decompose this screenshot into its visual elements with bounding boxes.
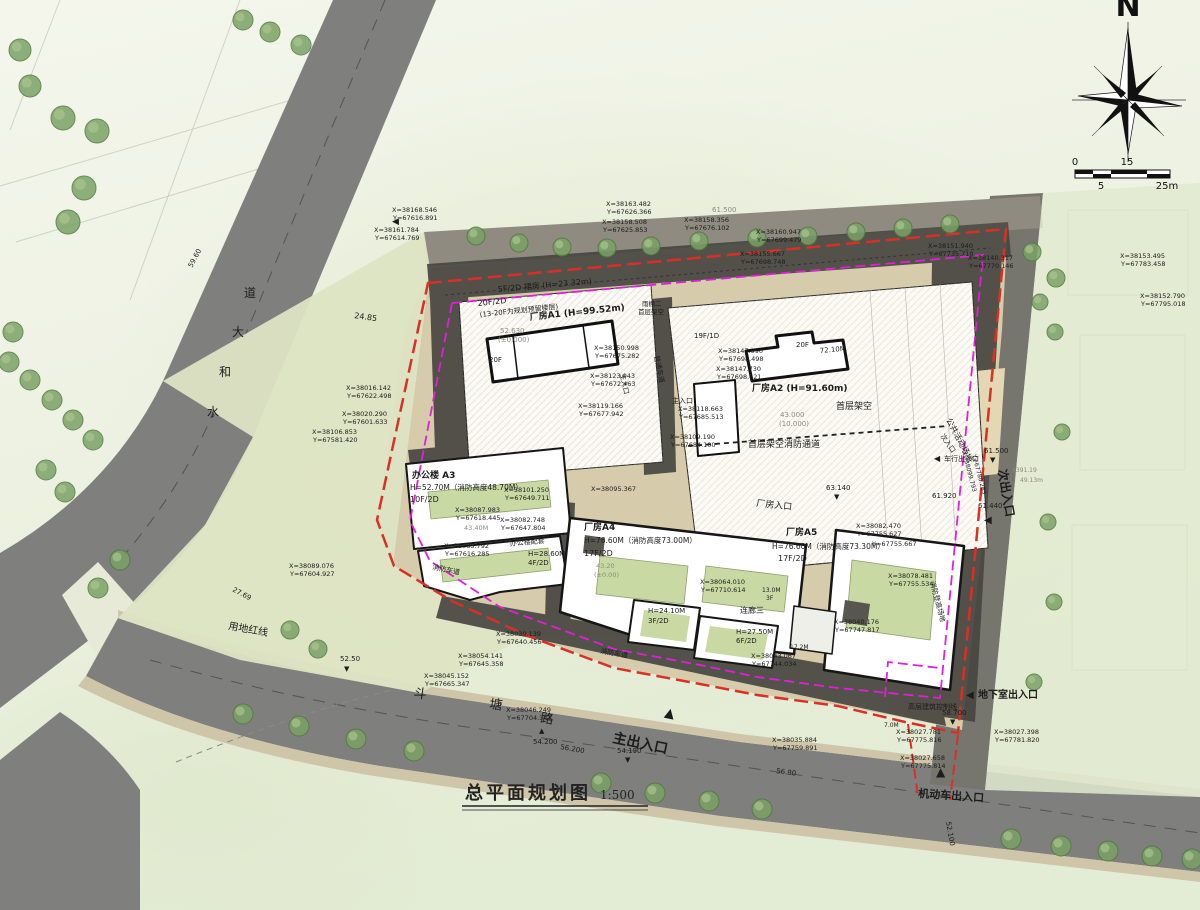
map-label: 3F/2D (648, 617, 669, 625)
map-label: Y=67698.748 (740, 258, 786, 266)
tree-highlight (1145, 849, 1154, 858)
map-label: Y=67614.769 (374, 234, 420, 242)
map-label: ◀ (392, 217, 399, 227)
map-label: (±0.000) (498, 336, 530, 344)
map-label: 61.500 (712, 206, 737, 214)
map-label: 52.630 (500, 327, 525, 335)
map-label: X=38153.495 (1120, 252, 1165, 260)
tree-highlight (943, 217, 951, 225)
map-label: H=27.50M (736, 628, 773, 636)
map-label: 10F/2D (410, 495, 439, 504)
tree-highlight (896, 221, 904, 229)
map-label: Y=67755.627 (856, 530, 902, 538)
map-label: Y=67626.366 (606, 208, 652, 216)
map-label: 19F/1D (694, 332, 719, 340)
map-label: X=38109.190 (670, 433, 715, 441)
map-label: X=38027.658 (900, 754, 945, 762)
map-label: ▼ (950, 718, 956, 726)
map-label: 63.140 (826, 484, 851, 492)
tree-highlight (59, 213, 70, 224)
map-label: ▼ (625, 756, 631, 764)
map-label: ▼ (344, 665, 350, 673)
map-label: 61.920 (932, 492, 957, 500)
basement-entrance-label: 地下室出入口 (978, 688, 1038, 701)
map-label: (±0.00) (594, 571, 619, 579)
map-label: 54.190 (617, 747, 642, 755)
map-label: 主入口 (672, 396, 693, 405)
map-label: Y=67677.942 (578, 410, 624, 418)
tree-highlight (1004, 832, 1013, 841)
tree-highlight (469, 229, 477, 237)
map-label: X=38155.667 (740, 250, 785, 258)
tree-highlight (283, 623, 291, 631)
tree-highlight (1048, 596, 1055, 603)
map-label: Y=67665.347 (424, 680, 470, 688)
tree-highlight (1049, 326, 1056, 333)
tree-highlight (66, 413, 75, 422)
map-label: Y=67685.513 (678, 413, 724, 421)
tree-highlight (644, 239, 652, 247)
tree-highlight (6, 325, 15, 334)
map-label: X=38119.166 (578, 402, 623, 410)
tree-highlight (292, 719, 301, 728)
map-label: 道 (244, 286, 256, 300)
tree-highlight (600, 241, 608, 249)
map-label: 43.20 (596, 562, 615, 570)
map-label: X=38040.176 (834, 618, 879, 626)
map-label: X=38101.250 (504, 486, 549, 494)
map-label: X=38039.139 (496, 630, 541, 638)
map-label: Y=67601.633 (342, 418, 388, 426)
map-label: X=38095.367 (591, 485, 636, 493)
map-label: (10.000) (779, 420, 809, 428)
map-label: 58.700 (942, 709, 967, 717)
map-label: 20F (489, 356, 502, 364)
map-label: Y=67625.853 (602, 226, 648, 234)
map-label: Y=67775.816 (896, 736, 942, 744)
map-label: Y=67759.891 (772, 744, 818, 752)
map-label: 17F/2D (778, 554, 807, 563)
map-label: Y=67675.282 (594, 352, 640, 360)
map-label: X=38085.792 (444, 542, 489, 550)
tree-highlight (54, 109, 65, 120)
building-a2 (668, 282, 988, 575)
tree-highlight (88, 122, 99, 133)
map-label: 首层架空 (638, 307, 665, 316)
map-label: X=38035.884 (772, 736, 817, 744)
tree-highlight (12, 42, 22, 52)
map-label: 20F (796, 341, 809, 349)
tree-highlight (22, 78, 32, 88)
map-label: X=38106.853 (312, 428, 357, 436)
map-label: X=38158.356 (684, 216, 729, 224)
tree-highlight (512, 236, 520, 244)
map-label: 连廊三 (740, 605, 764, 615)
map-label: 雨棚二 (642, 299, 662, 308)
map-label: Y=67649.711 (504, 494, 550, 502)
tree-highlight (311, 642, 319, 650)
map-label: Y=67672.463 (590, 380, 636, 388)
tree-highlight (1025, 245, 1033, 253)
map-label: Y=67698.498 (718, 355, 764, 363)
map-label: ◀ (966, 690, 974, 701)
map-label: 和 (219, 365, 231, 379)
map-label: 17F/2D (584, 549, 613, 558)
tree-highlight (23, 373, 32, 382)
map-label: H=76.60M（消防高度73.30M） (772, 541, 885, 551)
site-plan-page: 斗塘路水和大道主出入口▲机动车出入口▲地下室出入口◀次出入口◀厂房入口次入口车行… (0, 0, 1200, 910)
map-label: Y=67783.458 (1120, 260, 1166, 268)
map-label: X=38027.781 (896, 728, 941, 736)
tree-highlight (1185, 852, 1194, 861)
map-label: Y=67747.817 (834, 626, 880, 634)
map-label: X=38147.730 (716, 365, 761, 373)
map-label: X=38118.663 (678, 405, 723, 413)
tree-highlight (692, 234, 700, 242)
map-label: 7.0M (884, 722, 899, 729)
building-a2-label: 厂房A2 (H=91.60m) (752, 382, 848, 394)
tree-highlight (801, 229, 809, 237)
tree-highlight (236, 707, 245, 716)
map-label: 首层架空消防通道 (748, 438, 820, 450)
map-label: X=38147.990 (718, 347, 763, 355)
tree-highlight (594, 776, 603, 785)
map-label: ◀ (984, 515, 992, 526)
map-label: 13.0M (762, 587, 781, 594)
map-label: 首层架空 (836, 400, 872, 412)
map-label: Y=67616.285 (444, 550, 490, 558)
tree-highlight (1054, 839, 1063, 848)
tree-highlight (407, 744, 416, 753)
tree-highlight (1101, 844, 1110, 853)
map-label: X=38158.508 (602, 218, 647, 226)
tree-highlight (349, 732, 358, 741)
map-label: Y=67755.667 (871, 540, 917, 548)
tree-highlight (1034, 296, 1041, 303)
map-label: ▲ (539, 727, 545, 735)
map-label: Y=67698.621 (716, 373, 762, 381)
map-label: 17.2M (790, 644, 809, 651)
tree-highlight (1056, 426, 1063, 433)
tree-highlight (236, 13, 245, 22)
map-label: Y=67744.034 (751, 660, 797, 668)
tree-highlight (555, 240, 563, 248)
map-label: 水 (207, 405, 219, 419)
map-label: 4F/2D (528, 559, 549, 567)
building-a3-label: 办公楼 A3 (412, 469, 455, 481)
map-label: 斗 (412, 686, 427, 703)
map-label: X=38064.010 (700, 578, 745, 586)
map-label: X=38150.998 (594, 344, 639, 352)
map-label: X=38168.546 (392, 206, 437, 214)
tree-highlight (91, 581, 100, 590)
map-label: X=38016.142 (346, 384, 391, 392)
map-label: X=38140.317 (968, 254, 1013, 262)
map-label: X=38161.784 (374, 226, 419, 234)
map-label: Y=67755.534 (888, 580, 934, 588)
scale-tick-25m: 25m (1156, 181, 1178, 192)
map-label: 大 (232, 325, 244, 339)
map-label: Y=67710.614 (700, 586, 746, 594)
map-label: X=38046.249 (506, 706, 551, 714)
tree-highlight (849, 225, 857, 233)
tree-highlight (294, 38, 303, 47)
tree-highlight (75, 179, 86, 190)
north-label: N (1115, 0, 1140, 24)
map-label: H=24.10M (648, 607, 685, 615)
map-label: 6F/2D (736, 637, 757, 645)
map-label: X=38160.947 (756, 228, 801, 236)
map-label: ▼ (990, 456, 996, 464)
map-label: 塘 (488, 696, 503, 714)
map-label: X=38163.482 (606, 200, 651, 208)
building-a4-label: 厂房A4 (584, 521, 615, 533)
map-label: Y=67604.927 (289, 570, 335, 578)
map-label: 43.000 (780, 411, 805, 419)
map-label: Y=67684.100 (670, 441, 716, 449)
tree-highlight (86, 433, 95, 442)
map-label: Y=67647.804 (500, 524, 546, 532)
map-label: Y=67770.146 (968, 262, 1014, 270)
map-label: 3F (766, 595, 774, 602)
map-label: 52.50 (340, 655, 360, 663)
map-label: Y=67704.347 (506, 714, 552, 722)
scale-tick-15: 15 (1121, 157, 1134, 168)
tree-highlight (1049, 271, 1057, 279)
map-label: 61.500 (984, 447, 1009, 455)
map-label: Y=67645.358 (458, 660, 504, 668)
map-label: ▼ (834, 493, 840, 501)
map-label: 4391.19 (1012, 467, 1037, 474)
tree-highlight (263, 25, 272, 34)
map-label: X=38027.398 (994, 728, 1039, 736)
map-label: X=38089.076 (289, 562, 334, 570)
map-label: Y=67618.445 (455, 514, 501, 522)
tree-highlight (702, 794, 711, 803)
map-label: 61.440 (978, 502, 1003, 510)
map-label: Y=67622.498 (346, 392, 392, 400)
site-plan-canvas: 斗塘路水和大道主出入口▲机动车出入口▲地下室出入口◀次出入口◀厂房入口次入口车行… (0, 0, 1200, 910)
map-label: X=38152.790 (1140, 292, 1185, 300)
tree-highlight (45, 393, 54, 402)
map-label: X=38082.748 (500, 516, 545, 524)
map-label: X=38151.940 (928, 242, 973, 250)
scale-tick-5: 5 (1098, 181, 1104, 192)
tree-highlight (1028, 676, 1035, 683)
map-label: 54.200 (533, 738, 558, 746)
map-label: Y=67581.420 (312, 436, 358, 444)
map-label: X=38043.067 (751, 652, 796, 660)
scale-tick-0: 0 (1072, 157, 1078, 168)
map-label: H=28.60M (528, 550, 565, 558)
map-label: Y=67676.102 (684, 224, 730, 232)
page-title: 总平面规划图 (465, 782, 591, 804)
tree-highlight (755, 802, 764, 811)
page-scale: 1:500 (600, 788, 635, 802)
map-label: H=76.60M（消防高度73.00M） (584, 535, 697, 545)
map-label: X=38082.470 (856, 522, 901, 530)
building-a5-label: 厂房A5 (786, 526, 817, 538)
map-label: Y=67775.814 (900, 762, 946, 770)
tree-highlight (2, 355, 11, 364)
map-label: X=38045.152 (424, 672, 469, 680)
map-label: X=38123.043 (590, 372, 635, 380)
map-label: 43.40M (464, 524, 488, 532)
map-label: X=38087.983 (455, 506, 500, 514)
map-label: X=38054.141 (458, 652, 503, 660)
map-label: Y=67795.018 (1140, 300, 1186, 308)
map-label: Y=67735.710 (928, 250, 974, 258)
tree-highlight (648, 786, 657, 795)
map-label: 49.13m (1020, 477, 1043, 484)
map-label: X=38020.290 (342, 410, 387, 418)
map-label: ◀ (934, 454, 941, 463)
map-label: Y=67699.479 (756, 236, 802, 244)
map-label: X=38078.481 (888, 572, 933, 580)
map-label: Y=67781.820 (994, 736, 1040, 744)
tree-highlight (39, 463, 48, 472)
map-label: Y=67640.456 (496, 638, 542, 646)
tree-highlight (58, 485, 67, 494)
tree-highlight (113, 553, 122, 562)
tree-highlight (1042, 516, 1049, 523)
